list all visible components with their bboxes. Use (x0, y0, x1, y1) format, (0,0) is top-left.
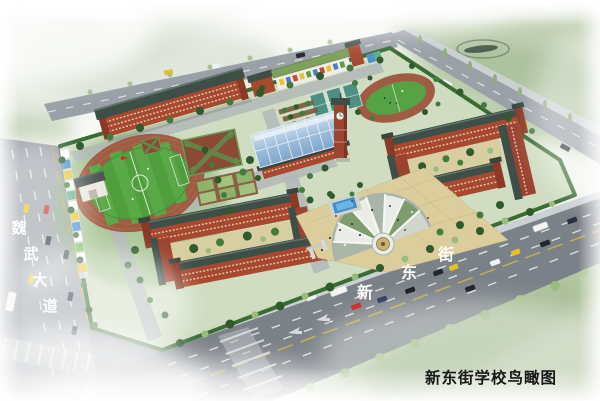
road-char: 大 (32, 271, 47, 289)
road-char: 新 (357, 283, 373, 302)
road-char: 东 (401, 263, 417, 282)
birdseye-rendering: 魏 武 大 道 新 东 街 新东街学校鸟瞰图 (0, 0, 600, 401)
road-char: 道 (42, 297, 57, 315)
road-char: 武 (23, 245, 38, 263)
campus-scene: 魏 武 大 道 新 东 街 新东街学校鸟瞰图 (0, 0, 600, 401)
road-char: 魏 (10, 219, 26, 237)
caption-title: 新东街学校鸟瞰图 (425, 368, 557, 387)
road-char: 街 (437, 245, 454, 264)
